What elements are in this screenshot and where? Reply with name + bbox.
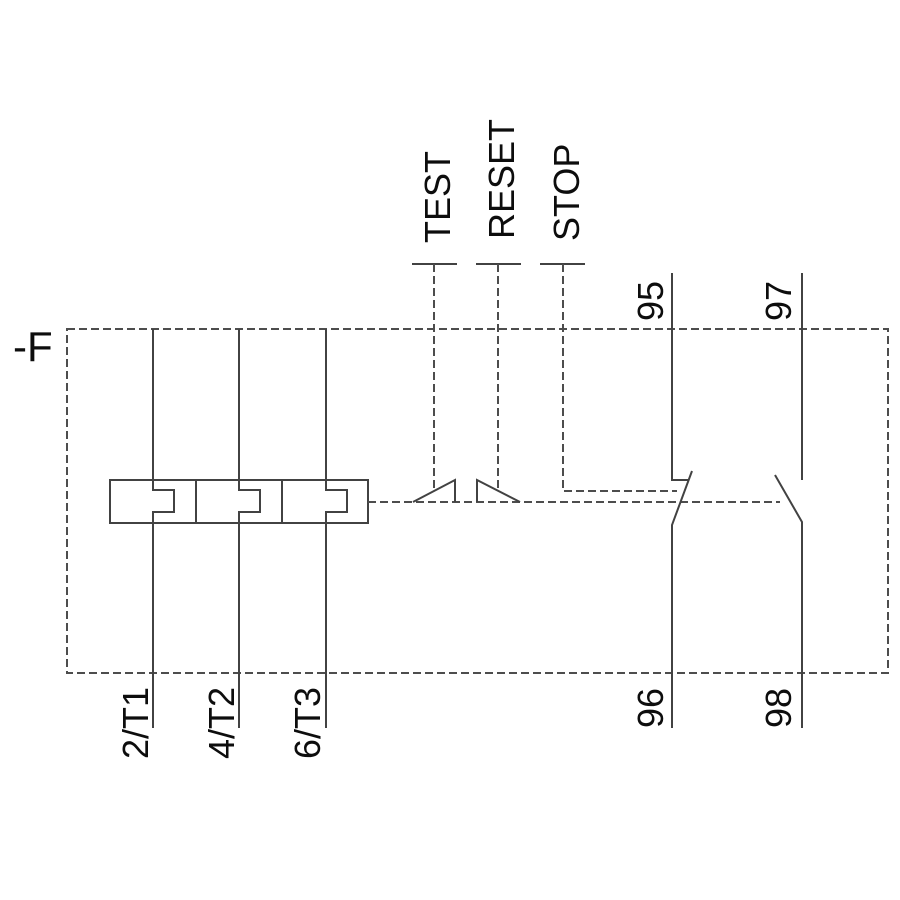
terminal-98-label: 98 [761,688,797,728]
terminal-4t2-label: 4/T2 [204,687,240,759]
overload-relay-schematic: -F TEST RESET STOP 95 97 96 98 2/T1 4/T2… [0,0,900,900]
test-button-label: TEST [420,151,456,243]
terminal-96-label: 96 [633,688,669,728]
reset-button-label: RESET [484,119,520,239]
nc-contact-top-terminal-95 [672,273,688,480]
phase-conductor-t2 [239,329,260,728]
nc-contact-lever-and-terminal-96 [672,471,692,728]
schematic-linework [0,0,900,900]
terminal-95-label: 95 [633,281,669,321]
terminal-97-label: 97 [761,281,797,321]
phase-conductor-t3 [326,329,347,728]
terminal-6t3-label: 6/T3 [290,687,326,759]
stop-button-label: STOP [549,144,585,241]
device-tag-label: -F [13,326,53,368]
phase-conductor-t1 [153,329,174,728]
terminal-2t1-label: 2/T1 [118,687,154,759]
